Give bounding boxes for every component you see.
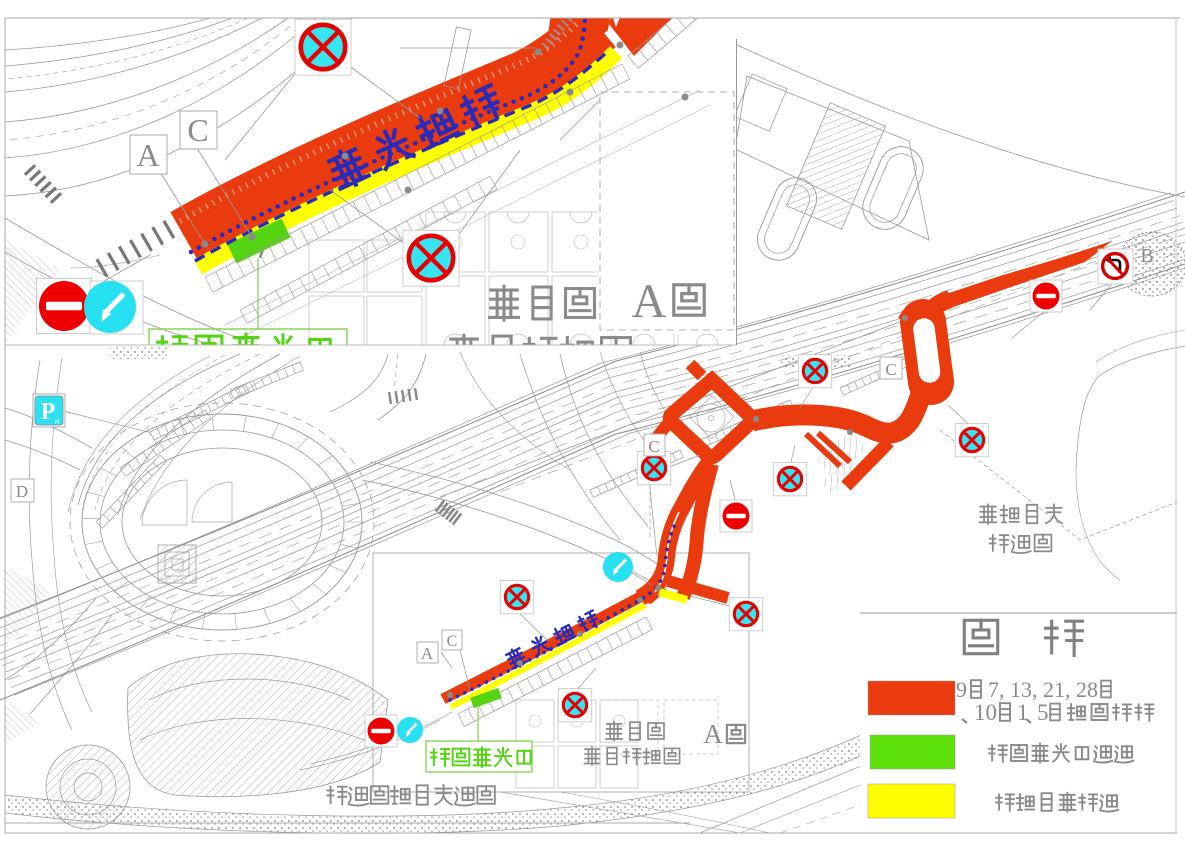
svg-text:D: D bbox=[16, 482, 28, 501]
svg-text:7, 13, 21, 28: 7, 13, 21, 28 bbox=[988, 677, 1098, 702]
svg-text:9: 9 bbox=[956, 677, 967, 702]
svg-text:P: P bbox=[41, 399, 56, 425]
svg-text:A: A bbox=[632, 275, 667, 328]
svg-text:C: C bbox=[447, 633, 458, 650]
svg-text:A: A bbox=[136, 137, 159, 173]
svg-text:C: C bbox=[187, 112, 208, 148]
svg-text:A: A bbox=[421, 644, 434, 663]
svg-text:B: B bbox=[1140, 245, 1153, 267]
svg-text:N: N bbox=[54, 418, 59, 426]
svg-text:5: 5 bbox=[1037, 700, 1049, 725]
svg-text:C: C bbox=[648, 437, 659, 456]
svg-text:C: C bbox=[885, 360, 896, 379]
svg-text:A: A bbox=[703, 719, 723, 749]
svg-text:10: 10 bbox=[974, 700, 997, 725]
svg-text:1: 1 bbox=[1017, 700, 1029, 725]
